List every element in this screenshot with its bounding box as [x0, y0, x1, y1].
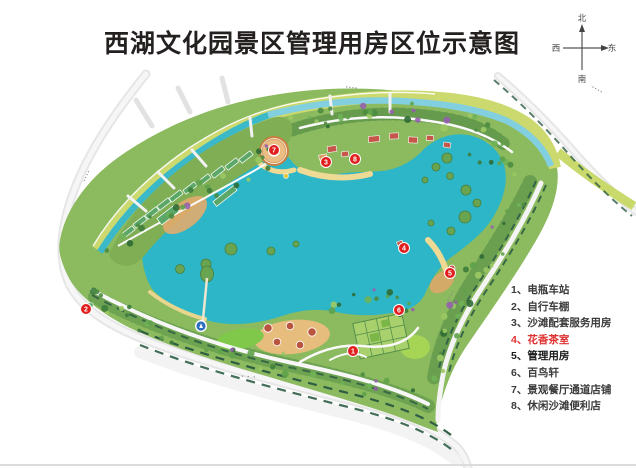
- legend-item: 4、花香茶室: [511, 332, 611, 349]
- map-marker-6: 6: [394, 305, 405, 316]
- compass-east-label: 东: [608, 43, 617, 53]
- legend-item: 5、管理用房: [511, 348, 611, 365]
- buoy-icon: [284, 174, 289, 179]
- legend-item: 8、休闲沙滩便利店: [511, 398, 611, 415]
- road-label: ▪ ▪ ▪: [241, 373, 256, 379]
- map-marker-1: 1: [348, 346, 359, 357]
- blue-circle-badge: [195, 320, 207, 332]
- svg-text:1: 1: [351, 349, 355, 356]
- legend-item: 1、电瓶车站: [511, 282, 611, 299]
- svg-text:2: 2: [84, 307, 88, 314]
- page-title: 西湖文化园景区管理用房区位示意图: [0, 24, 630, 60]
- map-marker-5: 5: [445, 268, 456, 279]
- svg-text:4: 4: [402, 246, 406, 253]
- legend-item: 7、景观餐厅通道店铺: [511, 382, 611, 399]
- map-marker-8: 8: [350, 154, 361, 165]
- legend-item: 6、百鸟轩: [511, 365, 611, 382]
- compass-west-label: 西: [552, 43, 561, 53]
- north-arrow: [579, 24, 585, 32]
- legend: 1、电瓶车站2、自行车棚3、沙滩配套服务用房4、花香茶室5、管理用房6、百鸟轩7…: [511, 282, 611, 415]
- svg-text:7: 7: [272, 148, 276, 155]
- map-marker-3: 3: [321, 157, 332, 168]
- map-marker-4: 4: [399, 243, 410, 254]
- legend-item: 2、自行车棚: [511, 299, 611, 316]
- screenshot-root: ▪▪▪▪▪▪▪▪▪▪▪▪▪▪▪▪▪ ▪ ▪ 12345678 西湖文化园景区管理…: [0, 0, 636, 468]
- map-marker-2: 2: [81, 304, 92, 315]
- map-marker-7: 7: [269, 145, 280, 156]
- svg-text:8: 8: [353, 157, 357, 164]
- compass-north-label: 北: [578, 13, 587, 23]
- svg-text:3: 3: [324, 160, 328, 167]
- bottom-divider: [0, 464, 636, 466]
- svg-text:5: 5: [448, 271, 452, 278]
- legend-item: 3、沙滩配套服务用房: [511, 315, 611, 332]
- compass-icon: 北 南 西 东: [549, 12, 619, 84]
- svg-text:6: 6: [397, 308, 401, 315]
- road-label: ▪▪▪▪: [591, 84, 604, 95]
- compass-south-label: 南: [578, 74, 587, 84]
